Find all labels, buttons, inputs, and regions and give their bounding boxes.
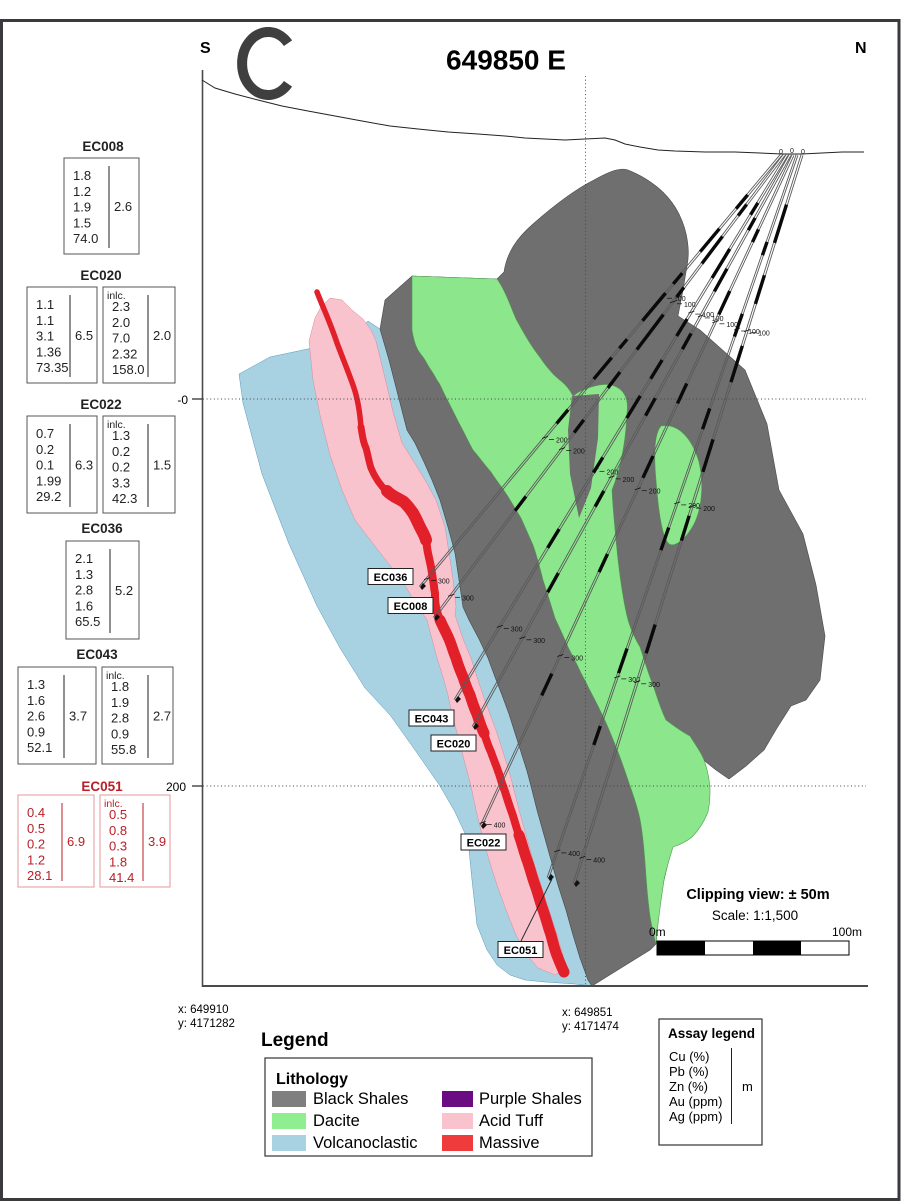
svg-text:7.0: 7.0 <box>112 331 130 346</box>
svg-text:Cu (%): Cu (%) <box>669 1049 709 1064</box>
svg-text:400: 400 <box>568 851 580 858</box>
svg-text:y: 4171474: y: 4171474 <box>562 1021 620 1033</box>
svg-text:2.0: 2.0 <box>112 315 130 330</box>
svg-text:0.3: 0.3 <box>109 839 127 854</box>
svg-text:1.2: 1.2 <box>27 852 45 867</box>
svg-text:EC020: EC020 <box>437 739 471 751</box>
svg-text:0: 0 <box>801 149 805 156</box>
svg-text:1.5: 1.5 <box>73 215 91 230</box>
svg-text:42.3: 42.3 <box>112 491 137 506</box>
svg-text:0m: 0m <box>649 925 666 939</box>
svg-text:158.0: 158.0 <box>112 362 145 377</box>
svg-text:52.1: 52.1 <box>27 740 52 755</box>
svg-text:200: 200 <box>703 506 715 513</box>
svg-text:EC036: EC036 <box>81 521 123 536</box>
svg-text:y: 4171282: y: 4171282 <box>178 1018 235 1030</box>
svg-text:x: 649910: x: 649910 <box>178 1004 229 1016</box>
svg-text:2.6: 2.6 <box>27 709 45 724</box>
svg-text:74.0: 74.0 <box>73 231 98 246</box>
svg-text:0.5: 0.5 <box>109 807 127 822</box>
svg-text:m: m <box>742 1079 753 1094</box>
svg-text:EC022: EC022 <box>467 838 501 850</box>
svg-text:300: 300 <box>533 638 545 645</box>
svg-text:200: 200 <box>573 449 585 456</box>
svg-text:2.0: 2.0 <box>153 328 171 343</box>
svg-text:2.8: 2.8 <box>75 583 93 598</box>
svg-text:1.8: 1.8 <box>111 679 129 694</box>
svg-text:Scale: 1:1,500: Scale: 1:1,500 <box>712 908 798 923</box>
svg-text:EC051: EC051 <box>81 779 123 794</box>
svg-text:300: 300 <box>438 579 450 586</box>
svg-text:0.9: 0.9 <box>27 724 45 739</box>
svg-text:2.3: 2.3 <box>112 299 130 314</box>
svg-text:Assay legend: Assay legend <box>668 1026 755 1041</box>
svg-text:EC036: EC036 <box>374 572 408 584</box>
svg-text:200: 200 <box>166 780 186 794</box>
svg-text:Lithology: Lithology <box>276 1071 348 1088</box>
svg-text:1.9: 1.9 <box>111 695 129 710</box>
svg-text:2.1: 2.1 <box>75 551 93 566</box>
svg-text:6.5: 6.5 <box>75 328 93 343</box>
svg-text:Purple Shales: Purple Shales <box>479 1090 582 1108</box>
svg-text:Legend: Legend <box>261 1030 329 1051</box>
svg-text:300: 300 <box>648 682 660 689</box>
svg-text:1.5: 1.5 <box>153 458 171 473</box>
svg-text:Dacite: Dacite <box>313 1112 360 1130</box>
svg-text:EC051: EC051 <box>504 945 538 957</box>
svg-text:Acid Tuff: Acid Tuff <box>479 1112 543 1130</box>
svg-text:Volcanoclastic: Volcanoclastic <box>313 1134 418 1152</box>
svg-text:300: 300 <box>511 626 523 633</box>
svg-text:0.5: 0.5 <box>27 821 45 836</box>
svg-text:100: 100 <box>758 331 770 338</box>
svg-text:1.1: 1.1 <box>36 297 54 312</box>
svg-text:6.3: 6.3 <box>75 458 93 473</box>
svg-text:1.3: 1.3 <box>27 677 45 692</box>
svg-text:73.35: 73.35 <box>36 360 69 375</box>
svg-text:55.8: 55.8 <box>111 742 136 757</box>
svg-text:5.2: 5.2 <box>115 583 133 598</box>
svg-text:Pb (%): Pb (%) <box>669 1064 709 1079</box>
svg-text:Black Shales: Black Shales <box>313 1090 408 1108</box>
svg-text:N: N <box>855 40 867 57</box>
svg-text:1.8: 1.8 <box>109 854 127 869</box>
svg-text:EC008: EC008 <box>82 139 124 154</box>
svg-text:300: 300 <box>462 595 474 602</box>
svg-text:200: 200 <box>623 477 635 484</box>
svg-text:0.2: 0.2 <box>112 460 130 475</box>
svg-text:EC008: EC008 <box>394 601 428 613</box>
svg-text:1.1: 1.1 <box>36 313 54 328</box>
svg-text:2.6: 2.6 <box>114 199 132 214</box>
svg-text:Ag (ppm): Ag (ppm) <box>669 1109 722 1124</box>
svg-text:Massive: Massive <box>479 1134 540 1152</box>
svg-text:0: 0 <box>790 148 794 155</box>
svg-text:400: 400 <box>494 822 506 829</box>
svg-text:1.36: 1.36 <box>36 344 61 359</box>
svg-text:0.2: 0.2 <box>27 837 45 852</box>
svg-text:649850 E: 649850 E <box>446 45 566 76</box>
svg-text:28.1: 28.1 <box>27 868 52 883</box>
svg-text:Zn (%): Zn (%) <box>669 1079 708 1094</box>
svg-text:3.1: 3.1 <box>36 329 54 344</box>
svg-text:0.4: 0.4 <box>27 805 45 820</box>
svg-text:200: 200 <box>556 437 568 444</box>
svg-text:0: 0 <box>779 149 783 156</box>
svg-text:EC043: EC043 <box>415 714 449 726</box>
svg-text:3.7: 3.7 <box>69 709 87 724</box>
svg-text:0.7: 0.7 <box>36 426 54 441</box>
svg-text:0.2: 0.2 <box>112 444 130 459</box>
svg-text:0.1: 0.1 <box>36 458 54 473</box>
svg-text:EC020: EC020 <box>80 268 121 283</box>
svg-text:1.3: 1.3 <box>112 428 130 443</box>
svg-text:29.2: 29.2 <box>36 489 61 504</box>
svg-text:EC043: EC043 <box>76 647 118 662</box>
svg-text:EC022: EC022 <box>80 397 121 412</box>
svg-text:0.9: 0.9 <box>111 726 129 741</box>
svg-text:S: S <box>200 40 211 57</box>
svg-text:200: 200 <box>649 489 661 496</box>
svg-text:400: 400 <box>593 857 605 864</box>
svg-text:6.9: 6.9 <box>67 834 85 849</box>
svg-text:100m: 100m <box>832 925 862 939</box>
svg-text:3.9: 3.9 <box>148 834 166 849</box>
svg-text:-0: -0 <box>177 393 188 407</box>
svg-text:x: 649851: x: 649851 <box>562 1007 613 1019</box>
svg-text:300: 300 <box>571 656 583 663</box>
svg-text:2.32: 2.32 <box>112 346 137 361</box>
svg-text:65.5: 65.5 <box>75 614 100 629</box>
svg-text:Clipping view: ± 50m: Clipping view: ± 50m <box>686 887 829 903</box>
svg-text:2.7: 2.7 <box>153 709 171 724</box>
svg-text:Au (ppm): Au (ppm) <box>669 1094 722 1109</box>
svg-text:3.3: 3.3 <box>112 475 130 490</box>
svg-text:0.8: 0.8 <box>109 823 127 838</box>
svg-text:1.6: 1.6 <box>27 693 45 708</box>
svg-text:1.99: 1.99 <box>36 473 61 488</box>
svg-text:2.8: 2.8 <box>111 711 129 726</box>
svg-text:0.2: 0.2 <box>36 442 54 457</box>
svg-text:41.4: 41.4 <box>109 870 134 885</box>
svg-text:1.9: 1.9 <box>73 200 91 215</box>
svg-text:1.8: 1.8 <box>73 168 91 183</box>
svg-text:1.3: 1.3 <box>75 567 93 582</box>
svg-text:1.2: 1.2 <box>73 184 91 199</box>
svg-text:1.6: 1.6 <box>75 598 93 613</box>
